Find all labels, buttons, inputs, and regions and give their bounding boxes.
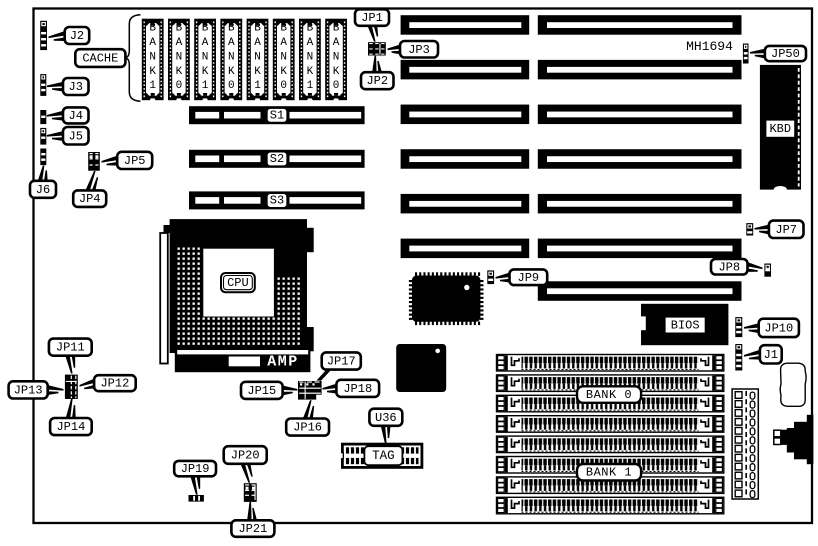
svg-text:A: A xyxy=(307,37,314,49)
svg-text:MH1694: MH1694 xyxy=(686,39,733,54)
svg-text:0: 0 xyxy=(228,80,235,92)
svg-text:B: B xyxy=(333,23,340,35)
svg-text:B: B xyxy=(280,23,287,35)
svg-text:B: B xyxy=(149,23,156,35)
svg-text:JP3: JP3 xyxy=(408,43,430,57)
svg-text:A: A xyxy=(280,37,287,49)
svg-text:K: K xyxy=(228,66,235,78)
svg-text:KBD: KBD xyxy=(769,122,791,136)
svg-text:J6: J6 xyxy=(36,183,50,197)
svg-text:K: K xyxy=(280,66,287,78)
svg-text:JP5: JP5 xyxy=(124,154,146,168)
svg-text:JP15: JP15 xyxy=(247,384,276,398)
svg-text:J1: J1 xyxy=(764,348,778,362)
svg-text:JP4: JP4 xyxy=(79,192,101,206)
svg-text:N: N xyxy=(280,51,287,63)
svg-text:A: A xyxy=(228,37,235,49)
svg-text:JP7: JP7 xyxy=(775,223,797,237)
svg-text:JP14: JP14 xyxy=(56,420,85,434)
svg-text:N: N xyxy=(149,51,156,63)
svg-text:1: 1 xyxy=(254,80,261,92)
svg-text:AMP: AMP xyxy=(267,354,299,371)
svg-text:J4: J4 xyxy=(69,109,83,123)
svg-text:N: N xyxy=(202,51,209,63)
svg-text:JP17: JP17 xyxy=(327,355,356,369)
svg-text:TAG: TAG xyxy=(372,449,395,463)
svg-text:K: K xyxy=(202,66,209,78)
svg-text:K: K xyxy=(176,66,183,78)
svg-text:S1: S1 xyxy=(270,109,284,123)
svg-text:JP1: JP1 xyxy=(361,11,383,25)
svg-text:B: B xyxy=(228,23,235,35)
svg-text:JP8: JP8 xyxy=(718,260,740,274)
svg-text:N: N xyxy=(254,51,261,63)
svg-text:JP11: JP11 xyxy=(56,341,85,355)
svg-text:JP9: JP9 xyxy=(518,271,540,285)
svg-text:N: N xyxy=(307,51,314,63)
svg-text:B: B xyxy=(254,23,261,35)
svg-text:B: B xyxy=(176,23,183,35)
svg-text:0: 0 xyxy=(333,80,340,92)
svg-text:JP10: JP10 xyxy=(764,321,793,335)
svg-text:1: 1 xyxy=(202,80,209,92)
svg-text:JP20: JP20 xyxy=(231,449,260,463)
svg-text:JP12: JP12 xyxy=(100,377,129,391)
svg-text:J3: J3 xyxy=(69,80,83,94)
svg-text:JP19: JP19 xyxy=(181,462,210,476)
svg-text:B: B xyxy=(202,23,209,35)
svg-text:1: 1 xyxy=(149,80,156,92)
svg-text:BIOS: BIOS xyxy=(671,318,700,332)
svg-text:A: A xyxy=(202,37,209,49)
svg-text:U36: U36 xyxy=(375,411,397,425)
svg-text:S2: S2 xyxy=(270,152,284,166)
svg-text:JP21: JP21 xyxy=(238,522,267,536)
svg-text:0: 0 xyxy=(176,80,183,92)
svg-text:JP18: JP18 xyxy=(343,382,372,396)
svg-text:N: N xyxy=(228,51,235,63)
svg-text:BANK 1: BANK 1 xyxy=(586,466,632,480)
svg-text:J2: J2 xyxy=(70,29,84,43)
svg-text:A: A xyxy=(254,37,261,49)
svg-text:A: A xyxy=(333,37,340,49)
svg-text:JP50: JP50 xyxy=(771,47,800,61)
svg-text:1: 1 xyxy=(307,80,314,92)
svg-text:JP2: JP2 xyxy=(366,74,388,88)
svg-text:N: N xyxy=(333,51,340,63)
svg-text:JP16: JP16 xyxy=(293,421,322,435)
svg-text:K: K xyxy=(307,66,314,78)
svg-text:K: K xyxy=(333,66,340,78)
svg-text:CPU: CPU xyxy=(227,276,249,290)
svg-text:A: A xyxy=(149,37,156,49)
svg-text:N: N xyxy=(176,51,183,63)
svg-text:A: A xyxy=(176,37,183,49)
svg-text:K: K xyxy=(149,66,156,78)
svg-text:BANK 0: BANK 0 xyxy=(586,388,632,402)
svg-text:J5: J5 xyxy=(69,129,83,143)
svg-text:0: 0 xyxy=(280,80,287,92)
svg-text:CACHE: CACHE xyxy=(82,52,118,66)
svg-text:JP13: JP13 xyxy=(14,383,43,397)
svg-text:K: K xyxy=(254,66,261,78)
svg-text:S3: S3 xyxy=(270,194,284,208)
svg-text:B: B xyxy=(307,23,314,35)
